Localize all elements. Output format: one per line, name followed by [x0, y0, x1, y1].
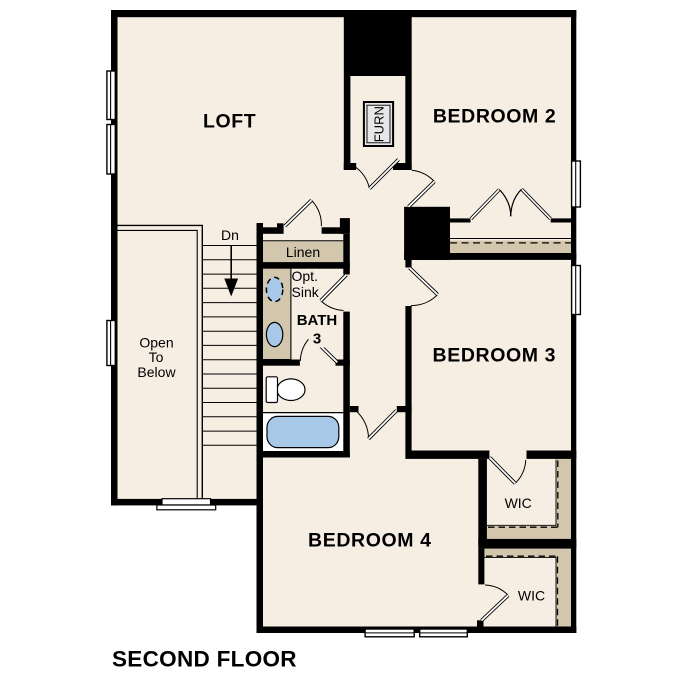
- svg-text:To: To: [149, 349, 164, 365]
- svg-text:Below: Below: [137, 364, 176, 380]
- svg-text:WIC: WIC: [505, 495, 532, 511]
- svg-text:BEDROOM 4: BEDROOM 4: [308, 530, 432, 552]
- svg-text:3: 3: [313, 331, 321, 348]
- svg-text:WIC: WIC: [518, 587, 545, 603]
- svg-text:FURN: FURN: [371, 106, 386, 142]
- svg-text:Dn: Dn: [221, 227, 239, 243]
- svg-text:BEDROOM 3: BEDROOM 3: [433, 345, 557, 367]
- svg-text:Sink: Sink: [292, 284, 320, 300]
- svg-text:BATH: BATH: [297, 312, 338, 329]
- svg-text:Opt.: Opt.: [292, 268, 318, 284]
- svg-text:Linen: Linen: [286, 244, 320, 260]
- svg-text:SECOND FLOOR: SECOND FLOOR: [112, 646, 297, 671]
- svg-text:LOFT: LOFT: [203, 111, 256, 133]
- svg-text:BEDROOM 2: BEDROOM 2: [433, 106, 557, 128]
